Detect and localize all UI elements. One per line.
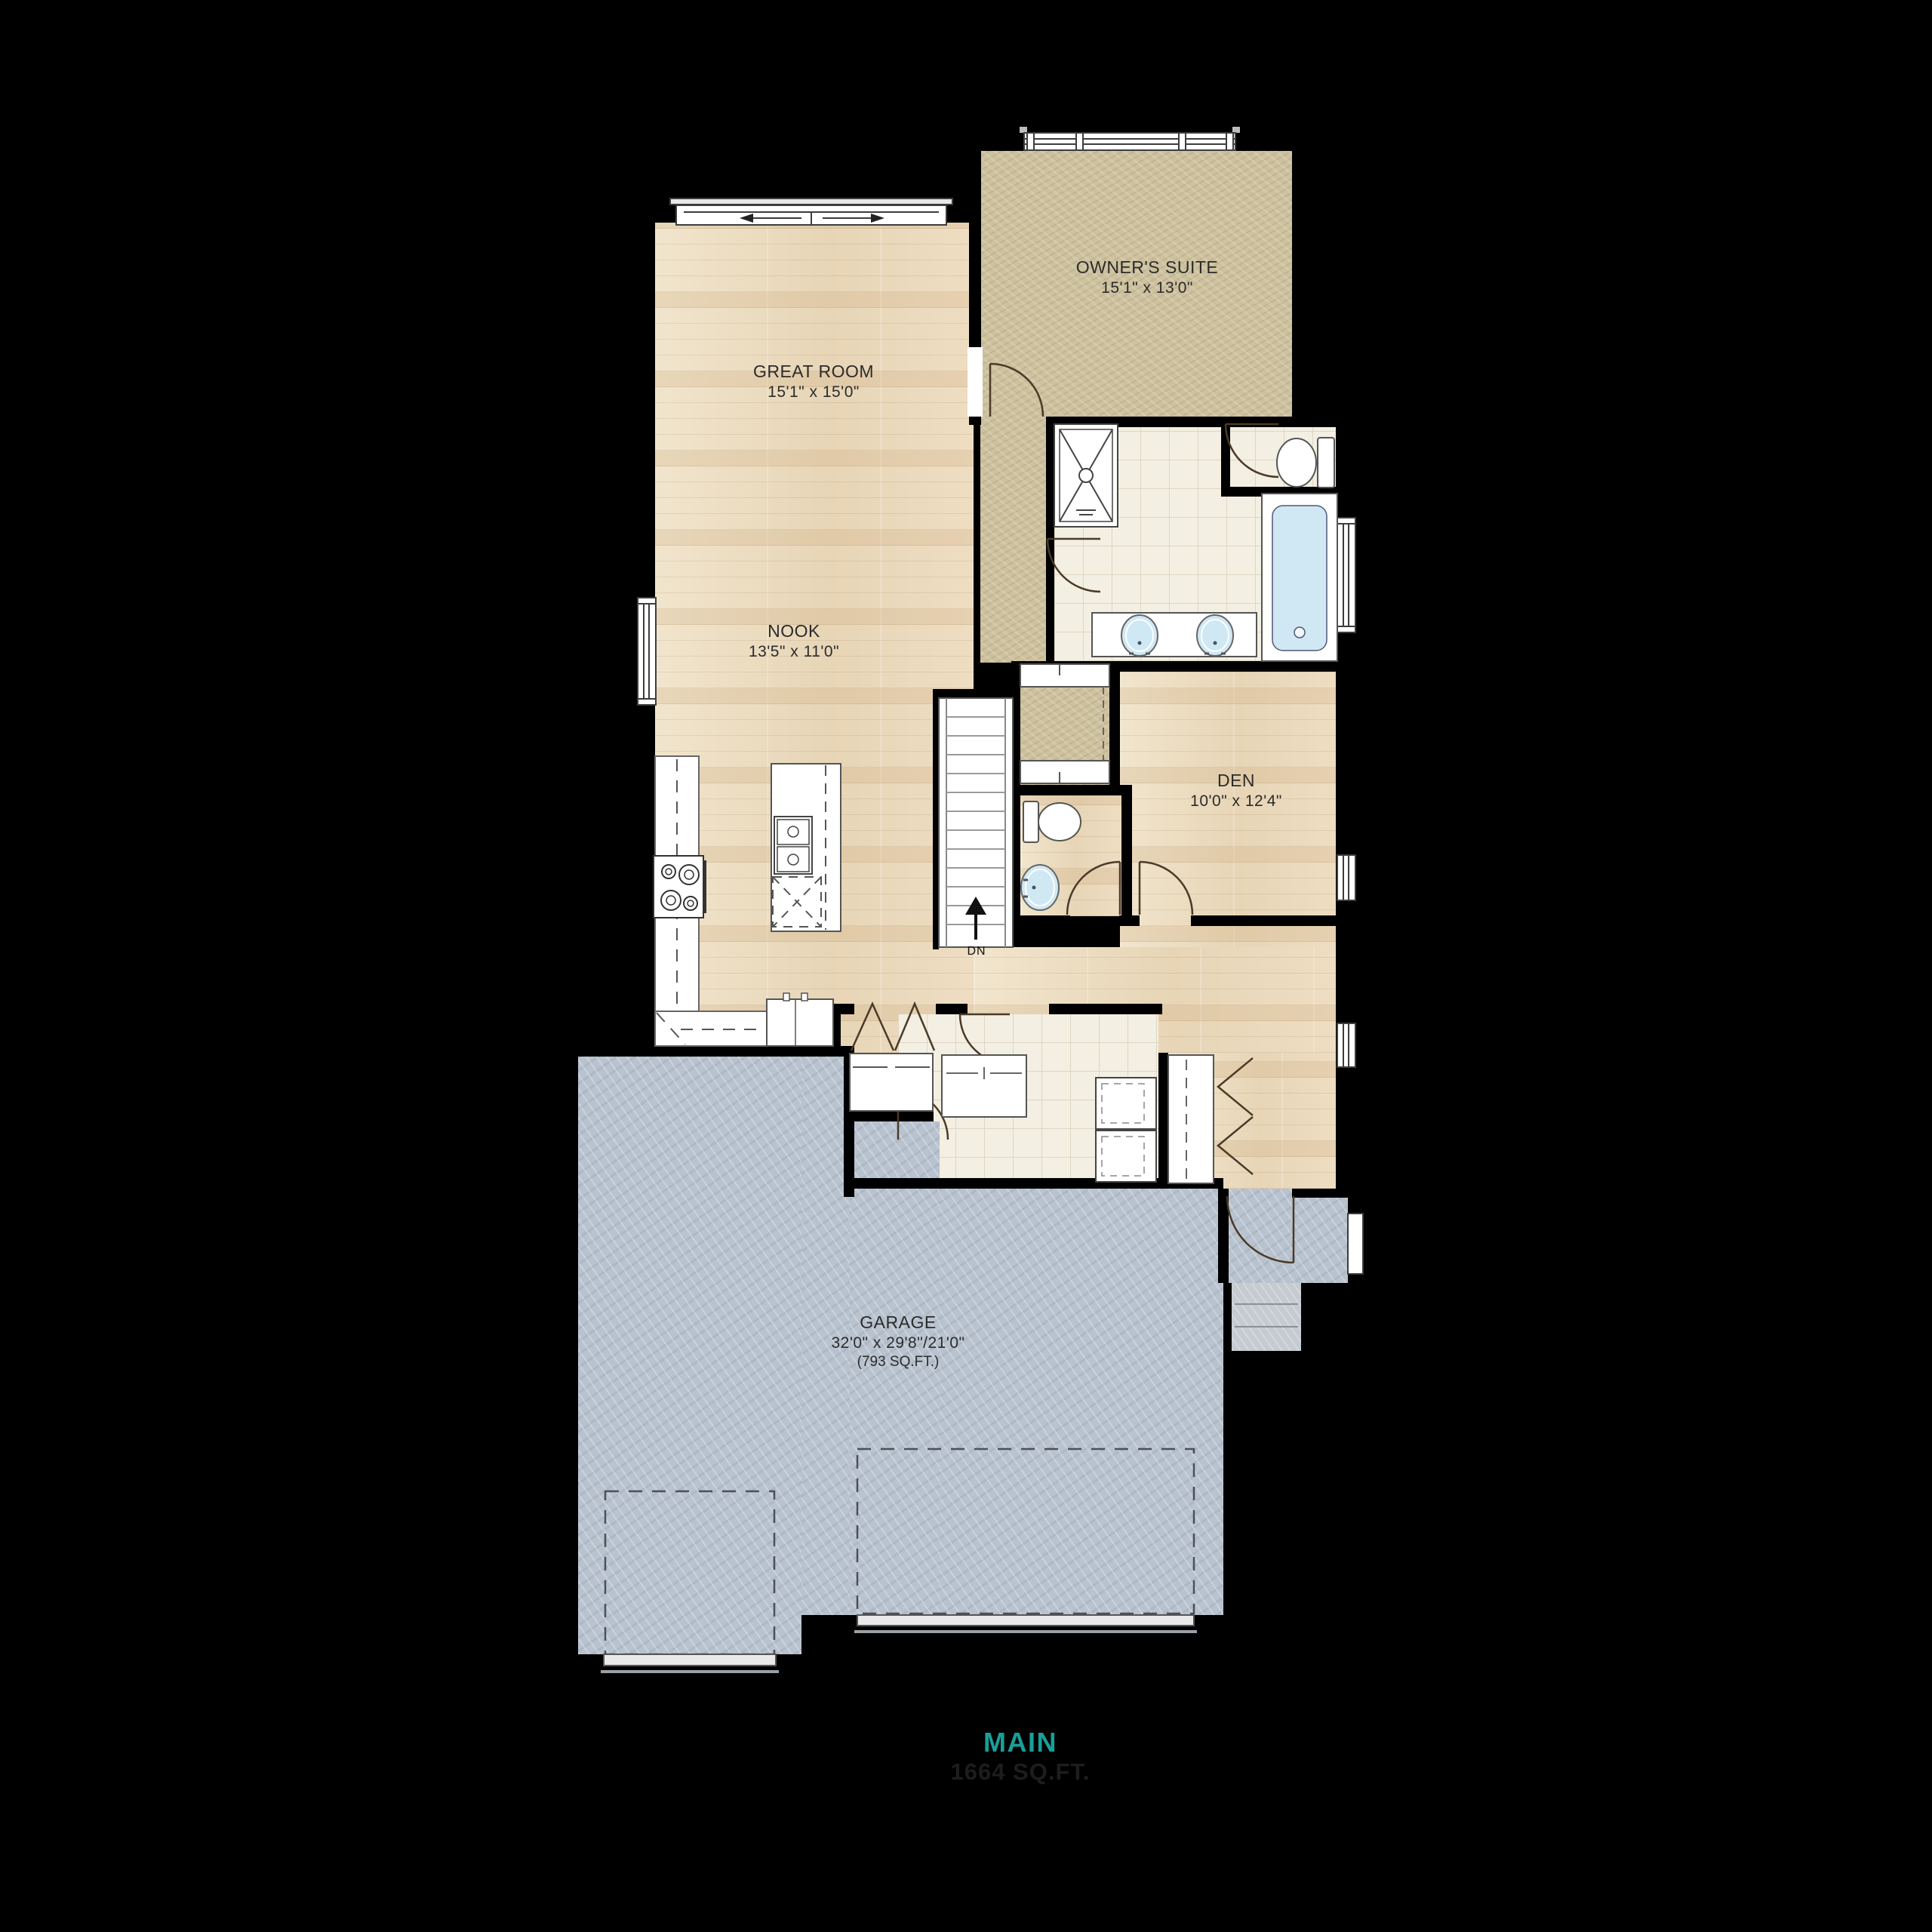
- bath-window-icon: [1337, 518, 1355, 632]
- room-dims: 32'0" x 29'8"/21'0": [831, 1334, 964, 1353]
- room-dims: 13'5" x 11'0": [749, 642, 839, 662]
- bifold-closet-doors: [1218, 1058, 1253, 1174]
- den-label: DEN 10'0" x 12'4": [1190, 770, 1282, 811]
- cooktop: [654, 856, 705, 918]
- garage-doors: [601, 1615, 1197, 1672]
- wc-door: [1226, 424, 1278, 477]
- refrigerator: [767, 993, 833, 1046]
- stoop-steps: [1235, 1304, 1298, 1327]
- wall: [1013, 915, 1070, 926]
- wall: [1046, 420, 1054, 537]
- owners-suite-label: OWNER'S SUITE 15'1" x 13'0": [1076, 257, 1219, 298]
- suite-door: [990, 364, 1043, 417]
- wall: [933, 689, 1020, 698]
- powder-sink: [1021, 865, 1059, 910]
- closet-door: [1048, 539, 1100, 592]
- wall: [1119, 915, 1140, 926]
- kitchen-island: [771, 764, 841, 931]
- wall: [1121, 785, 1132, 926]
- stairs-dn-label: DN: [967, 945, 986, 958]
- wall: [936, 1004, 968, 1014]
- entry-closet: [1168, 1055, 1214, 1183]
- cased-opening: [968, 347, 983, 417]
- floor-plan-canvas: GREAT ROOM 15'1" x 15'0" OWNER'S SUITE 1…: [0, 0, 1932, 1932]
- floor-title: MAIN: [983, 1727, 1057, 1758]
- staircase: [939, 698, 1013, 947]
- garage-label: GARAGE 32'0" x 29'8"/21'0" (793 SQ.FT.): [831, 1312, 964, 1371]
- double-vanity: [1092, 613, 1257, 657]
- garage-entry-door: [1227, 1196, 1294, 1263]
- coat-closet: [942, 1055, 1026, 1117]
- closet-shelves: [1020, 664, 1109, 783]
- wc-toilet: [1277, 438, 1334, 488]
- wall: [1013, 785, 1123, 795]
- den-door: [1140, 862, 1192, 915]
- nook-window-icon: [638, 598, 656, 705]
- sliding-patio-door-icon: [670, 198, 952, 225]
- wall: [1109, 661, 1120, 789]
- room-name: GREAT ROOM: [753, 361, 874, 383]
- room-name: DEN: [1190, 770, 1282, 792]
- wall: [1013, 689, 1020, 924]
- bathtub: [1262, 494, 1337, 661]
- room-dims: 10'0" x 12'4": [1190, 792, 1282, 811]
- room-name: NOOK: [749, 620, 839, 642]
- floor-area-text: 1664 SQ.FT.: [950, 1758, 1090, 1786]
- wall: [578, 1046, 853, 1057]
- nook-label: NOOK 13'5" x 11'0": [749, 620, 839, 662]
- room-area: (793 SQ.FT.): [831, 1353, 964, 1371]
- den-window-icon: [1337, 855, 1355, 900]
- powder-door: [1067, 862, 1120, 915]
- room-name: OWNER'S SUITE: [1076, 257, 1219, 278]
- plan-linework: [0, 0, 1932, 1932]
- wall: [1191, 915, 1336, 926]
- room-dims: 15'1" x 15'0": [753, 383, 874, 402]
- pantry: [850, 1054, 933, 1111]
- entry-window-icon: [1337, 1023, 1355, 1067]
- wall: [1049, 1004, 1162, 1014]
- powder-toilet: [1023, 801, 1081, 842]
- front-door-icon: [1348, 1214, 1363, 1274]
- room-dims: 15'1" x 13'0": [1076, 278, 1219, 298]
- suite-window-icon: [1020, 127, 1240, 150]
- wall: [1158, 1055, 1168, 1186]
- island-sink: [774, 817, 812, 874]
- wall: [1292, 1189, 1349, 1198]
- great-room-label: GREAT ROOM 15'1" x 15'0": [753, 361, 874, 402]
- pantry-double-doors: [851, 1004, 934, 1051]
- shower: [1054, 424, 1118, 527]
- wall: [849, 1111, 934, 1121]
- washer-dryer: [1096, 1078, 1156, 1182]
- room-name: GARAGE: [831, 1312, 964, 1334]
- wall: [933, 694, 939, 949]
